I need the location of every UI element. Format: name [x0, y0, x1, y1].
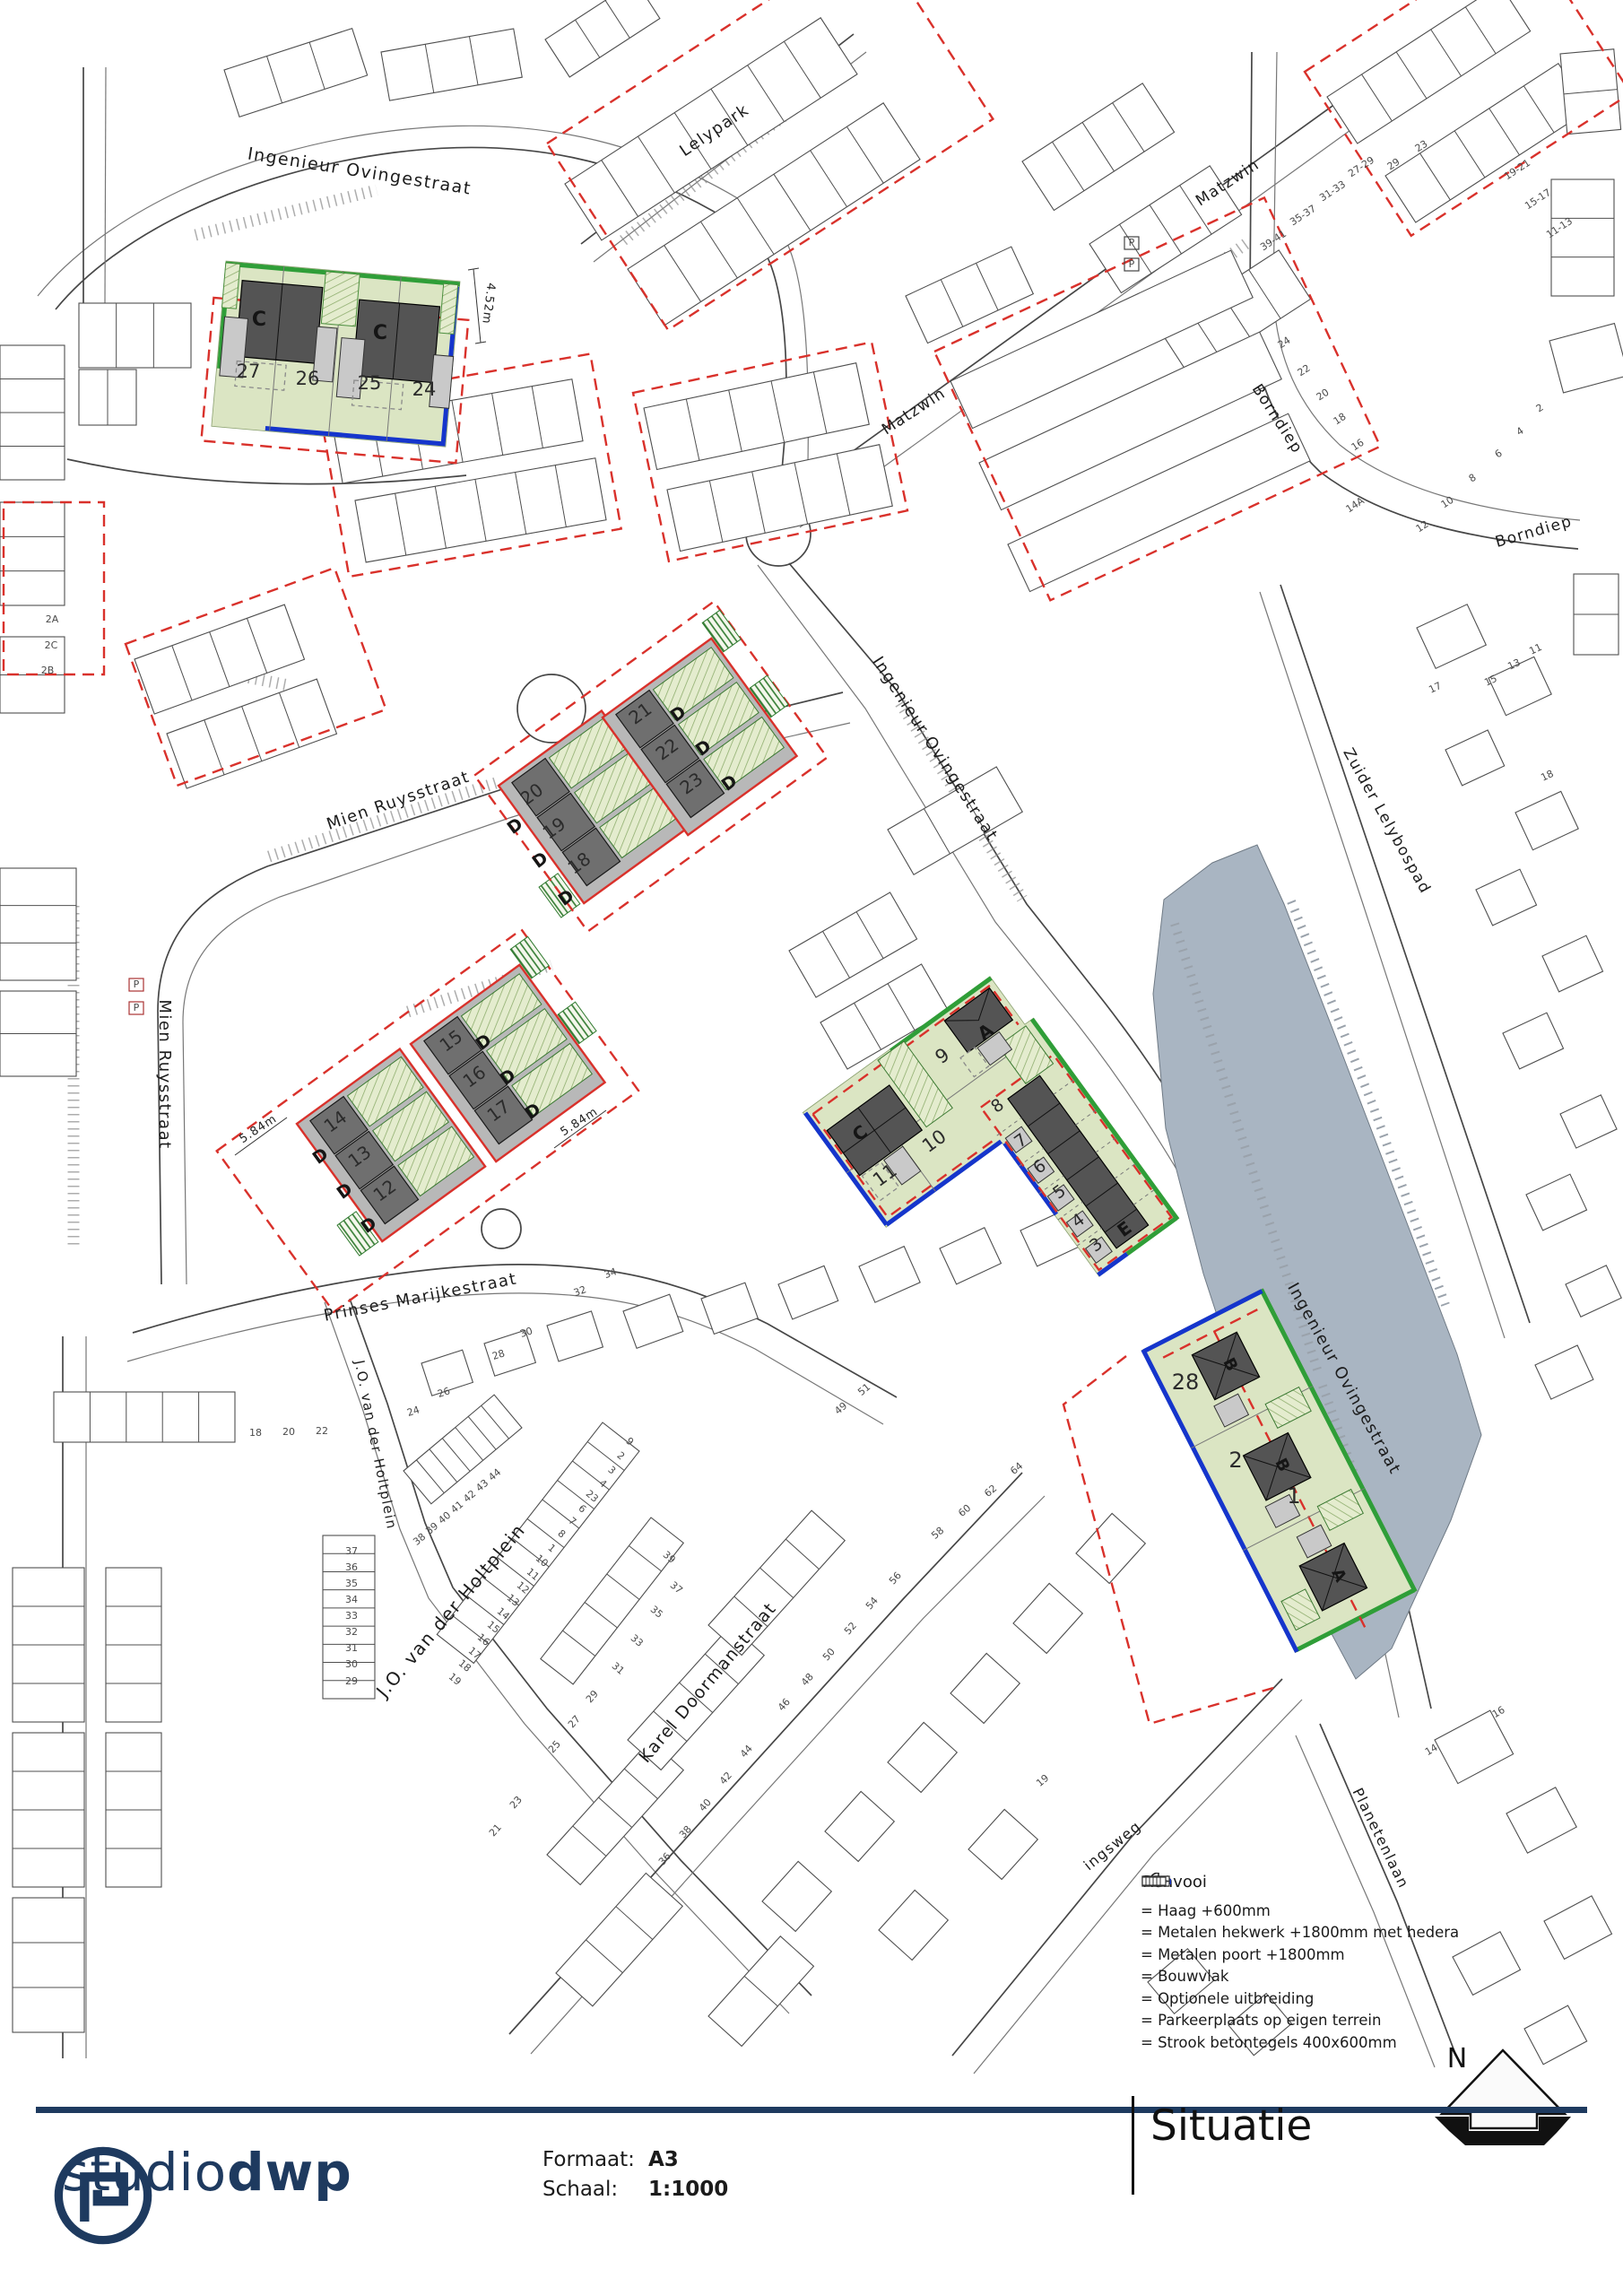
scale-value: 1:1000 [648, 2178, 728, 2201]
background-building [1560, 49, 1621, 135]
house-number: P [134, 978, 140, 990]
house-number: 14A [1344, 494, 1367, 515]
hatch-strip-icon [1141, 1873, 1176, 1889]
background-building [0, 868, 76, 980]
house-number: P [1129, 237, 1135, 248]
house-number: 35 [648, 1604, 665, 1621]
house-number: 43 [473, 1477, 490, 1494]
house-number: 24 [405, 1404, 421, 1419]
background-building [1445, 730, 1505, 786]
house-number: 15-17 [1523, 187, 1553, 212]
house-number: 31 [345, 1642, 358, 1654]
street-label: Matzwin [879, 384, 949, 439]
format-value: A3 [648, 2148, 679, 2171]
house-number: 38 [677, 1823, 694, 1840]
drawing-sheet: Ingenieur OvingestraatLelyparkMatzwinMat… [0, 0, 1623, 2296]
background-building [701, 1283, 758, 1334]
street-label: Ingenieur Ovingestraat [247, 143, 473, 198]
background-building [13, 1568, 84, 1722]
house-number: 52 [842, 1620, 859, 1637]
house-number: 6 [1493, 448, 1505, 461]
house-number: 37 [345, 1545, 358, 1557]
house-number: 39 [423, 1520, 440, 1537]
background-building [1503, 1013, 1564, 1069]
background-building [708, 1510, 845, 1655]
house-number: 48 [799, 1671, 816, 1688]
house-number: 35 [345, 1578, 358, 1589]
house-number: 54 [864, 1595, 881, 1612]
house-number: 32 [345, 1626, 358, 1638]
street-label: Prinses Marijkestraat [322, 1269, 518, 1325]
studio-dwp-logo-icon [49, 2142, 157, 2249]
background-building [106, 1733, 161, 1887]
title-divider [1132, 2096, 1134, 2195]
house-number: 50 [820, 1646, 838, 1663]
brand-bold: dwp [227, 2142, 352, 2203]
background-building [54, 1392, 235, 1442]
background-building [556, 1874, 682, 2006]
house-number: 42 [717, 1770, 734, 1787]
street-label: Mien Ruysstraat [155, 999, 174, 1149]
background-building [1549, 324, 1623, 393]
house-number: 60 [956, 1502, 973, 1519]
scale-label: Schaal: [542, 2175, 648, 2205]
background-building [623, 1294, 683, 1348]
house-number: 4 [1515, 425, 1526, 439]
house-number: 22 [316, 1425, 328, 1437]
house-number: 25 [546, 1738, 563, 1755]
background-building [1476, 869, 1537, 926]
house-number: 41 [448, 1499, 465, 1516]
house-number: 40 [436, 1509, 453, 1526]
house-number: 44 [486, 1466, 503, 1483]
house-number: 31-33 [1317, 178, 1348, 204]
house-number: 29 [345, 1675, 358, 1687]
background-building [381, 29, 522, 100]
titleblock-rule [36, 2107, 1587, 2113]
background-building [0, 502, 65, 605]
house-number: 33 [629, 1632, 646, 1649]
house-number: 16 [1350, 437, 1367, 454]
building-type-letter: C [373, 322, 387, 344]
drawing-title: Situatie [1150, 2101, 1312, 2195]
background-building [1022, 83, 1175, 211]
sheet-meta: Formaat:A3 Schaal:1:1000 [542, 2145, 728, 2205]
house-number: 2A [46, 613, 59, 625]
house-number: P [1129, 258, 1135, 270]
background-building [79, 303, 191, 368]
background-building [1417, 604, 1486, 669]
house-number: 30 [345, 1658, 358, 1670]
plot-number: 1 [1287, 1483, 1300, 1509]
background-building [825, 1791, 894, 1861]
background-building [1013, 1583, 1082, 1653]
dimension-label: 5.84m [237, 1112, 279, 1146]
house-number: 10 [1439, 494, 1456, 511]
background-building [106, 1568, 161, 1722]
background-building [0, 991, 76, 1076]
street-label: Karel Doormanstraat [635, 1598, 780, 1766]
legend-item-poort: = Metalen poort +1800mm [1141, 1944, 1562, 1966]
background-building [1535, 1345, 1593, 1399]
house-number: 44 [738, 1743, 755, 1760]
background-building [13, 1898, 84, 2032]
plot-number: 26 [296, 368, 320, 389]
house-number: 19 [1034, 1772, 1051, 1789]
legend-item-hekwerk: = Metalen hekwerk +1800mm met hedera [1141, 1922, 1562, 1944]
house-number: 51 [855, 1381, 872, 1398]
background-building [547, 1311, 603, 1361]
house-number: 64 [1008, 1460, 1025, 1477]
house-number: 33 [345, 1610, 358, 1622]
background-building [404, 1395, 522, 1504]
background-building [1435, 1710, 1514, 1783]
house-number: 18 [249, 1427, 262, 1439]
background-building [1551, 179, 1614, 296]
background-building [940, 1228, 1001, 1284]
house-number: 30 [518, 1325, 534, 1340]
house-number: 58 [929, 1525, 946, 1542]
house-number: 20 [282, 1426, 295, 1438]
building-type-letter: C [252, 309, 266, 331]
house-number: 22 [1296, 362, 1313, 379]
legend-item-haag: = Haag +600mm [1141, 1900, 1562, 1922]
background-building [545, 0, 660, 77]
house-number: 2 [1534, 402, 1546, 415]
background-building [0, 345, 65, 480]
drawing-title-block: Situatie [1132, 2096, 1312, 2195]
house-number: 36 [345, 1561, 358, 1573]
background-building [879, 1890, 948, 1960]
house-number: 18 [1332, 411, 1349, 428]
house-number: 29 [584, 1688, 601, 1705]
house-number: 42 [461, 1488, 478, 1505]
background-building [906, 247, 1033, 344]
legend-item-parkeerplaats: = Parkeerplaats op eigen terrein [1141, 2010, 1562, 2032]
plot-number: 24 [412, 378, 437, 400]
house-number: 17 [1427, 680, 1443, 696]
house-number: 21 [487, 1822, 504, 1839]
background-building [859, 1247, 920, 1303]
background-building [968, 1809, 1037, 1879]
house-number: 34 [345, 1594, 358, 1605]
background-building [1506, 1787, 1576, 1853]
legend-item-bouwvlak: = Bouwvlak [1141, 1966, 1562, 1988]
house-number: 23 [508, 1794, 525, 1811]
format-label: Formaat: [542, 2145, 648, 2175]
house-number: 2B [41, 665, 55, 676]
house-number: 35-37 [1288, 203, 1318, 228]
background-building [13, 1733, 84, 1887]
house-number: 27 [566, 1713, 583, 1730]
background-building [950, 1653, 1020, 1723]
background-building [1566, 1265, 1621, 1317]
background-building [778, 1265, 838, 1319]
house-number: P [134, 1002, 140, 1013]
house-number: 34 [603, 1265, 619, 1281]
brand-logo-block: studiodwp [49, 2142, 352, 2203]
house-number: 2C [45, 639, 58, 651]
legend-title: Renvooi [1142, 1873, 1562, 1892]
dimension-label: 4.52m [479, 282, 498, 325]
plot-number: 2 [1228, 1448, 1242, 1473]
plot-number: 25 [358, 372, 382, 394]
house-number: 36 [656, 1850, 673, 1867]
street-label: J.O. van der Holtplein [352, 1358, 401, 1531]
background-building [888, 1722, 957, 1792]
background-building [224, 29, 368, 117]
plot-number: 27 [237, 361, 261, 382]
parking-bay-strip [269, 782, 499, 857]
background-building [708, 1936, 813, 2047]
legend-item-strook: = Strook betontegels 400x600mm [1141, 2031, 1562, 2054]
background-building [1574, 574, 1619, 655]
house-number: 31 [610, 1660, 627, 1677]
background-building [1560, 1095, 1617, 1148]
street-label: ingsweg [1081, 1817, 1145, 1874]
background-building [1526, 1174, 1587, 1231]
legend-item-optioneel: = Optionele uitbreiding [1141, 1987, 1562, 2010]
house-number: 39-41 [1258, 228, 1289, 253]
house-number: 8 [1467, 472, 1479, 485]
house-number: 62 [982, 1483, 999, 1500]
street-label: Borndiep [1493, 512, 1574, 552]
background-building [1515, 791, 1578, 849]
house-number: 38 [411, 1531, 428, 1548]
house-number: 56 [887, 1570, 904, 1587]
house-number: 11 [1527, 641, 1543, 657]
background-building [1542, 935, 1603, 992]
house-number: 18 [1539, 768, 1555, 784]
house-number: 20 [1315, 387, 1332, 404]
background-building [1076, 1513, 1145, 1583]
background-building [79, 370, 136, 425]
legend: Renvooi = Haag +600mm = Metalen hekwerk … [1141, 1873, 1562, 2054]
plot-number: 28 [1172, 1370, 1200, 1395]
house-number: 19 [447, 1671, 464, 1688]
house-number: 46 [776, 1696, 793, 1713]
background-building [762, 1861, 831, 1931]
house-number: 37 [668, 1579, 685, 1596]
